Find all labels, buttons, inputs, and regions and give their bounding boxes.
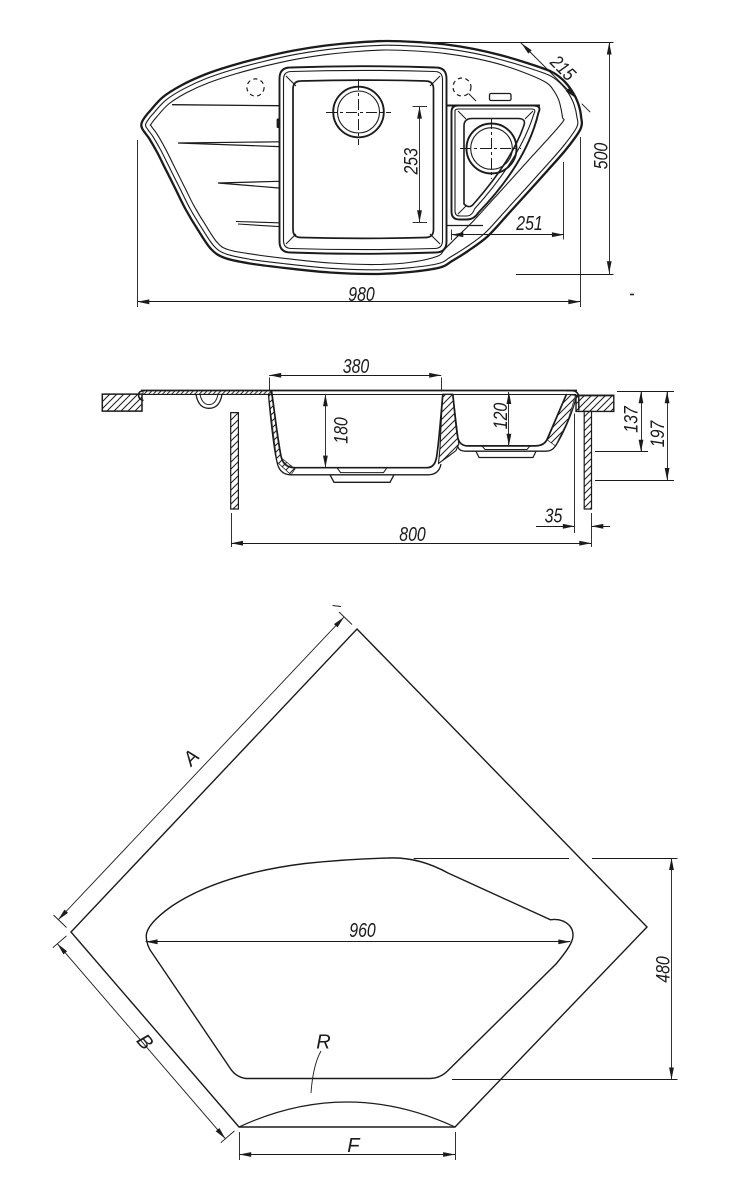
svg-text:253: 253 (402, 148, 423, 176)
svg-text:251: 251 (515, 213, 542, 235)
svg-text:137: 137 (622, 405, 643, 433)
svg-text:980: 980 (348, 284, 375, 306)
svg-text:180: 180 (332, 417, 353, 444)
svg-text:800: 800 (399, 524, 426, 546)
svg-text:500: 500 (592, 142, 613, 169)
svg-text:R: R (316, 1032, 330, 1054)
svg-text:960: 960 (349, 920, 376, 942)
svg-text:197: 197 (648, 420, 669, 448)
svg-text:380: 380 (343, 356, 370, 378)
svg-text:480: 480 (654, 956, 675, 983)
svg-text:120: 120 (491, 402, 512, 429)
svg-text:35: 35 (545, 506, 563, 528)
svg-text:F: F (347, 1135, 361, 1157)
